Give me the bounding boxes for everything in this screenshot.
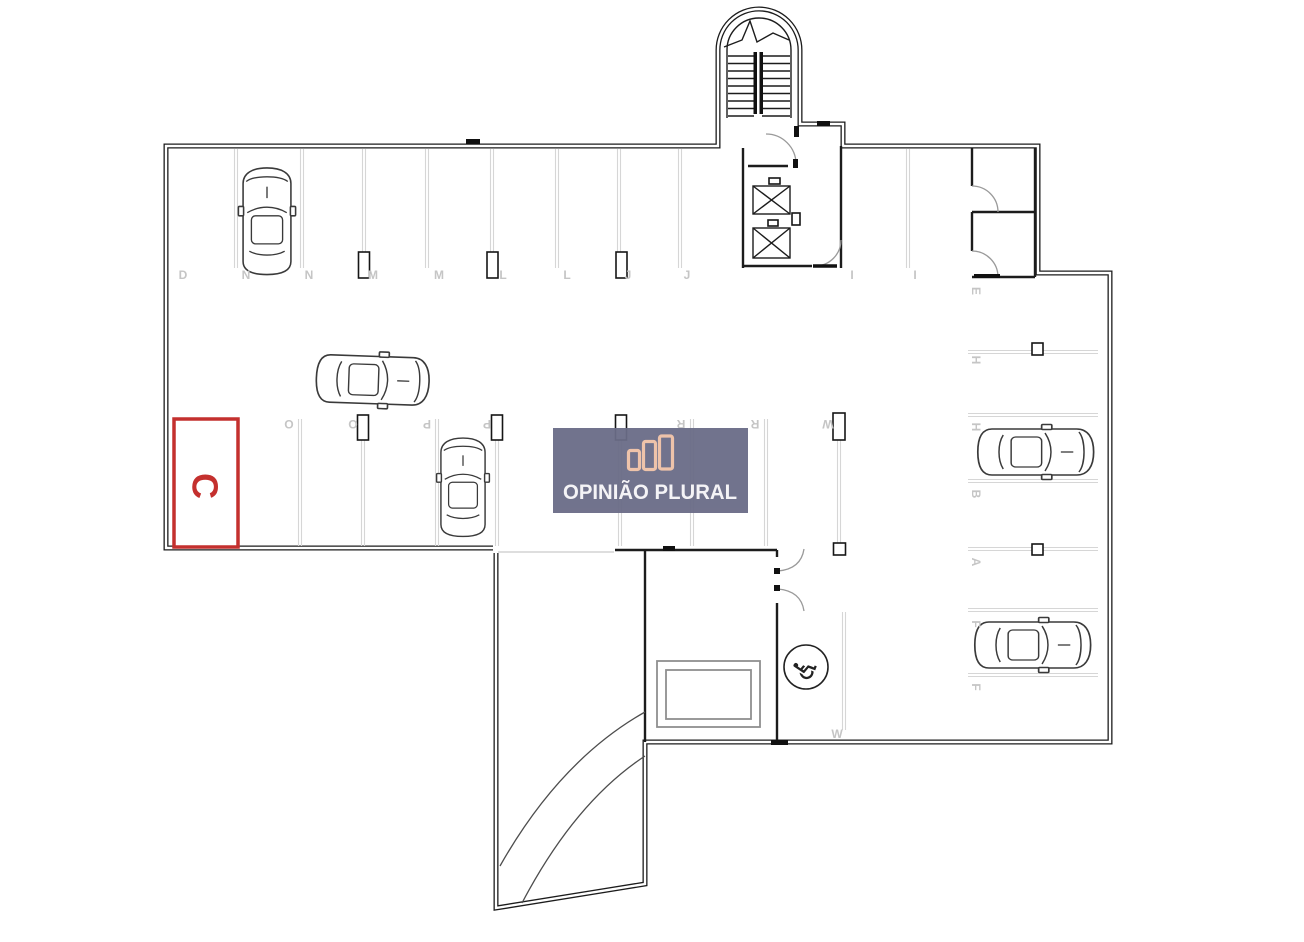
space-label: O	[348, 417, 357, 431]
parking-floor-plan-page: ♿ D N N M M L L J J I I O O P P R R W E …	[0, 0, 1304, 942]
space-label: W	[822, 417, 834, 431]
car	[978, 425, 1094, 480]
space-label: F	[969, 620, 983, 627]
highlighted-space[interactable]: C	[174, 419, 238, 547]
lobby-door-arc	[815, 240, 841, 266]
parking-floor-plan: ♿ D N N M M L L J J I I O O P P R R W E …	[0, 0, 1304, 942]
elevator-shaft-1	[753, 186, 790, 214]
double-door-leaf-bottom	[778, 589, 804, 611]
space-label: I	[913, 268, 916, 282]
car	[315, 350, 430, 411]
space-label: O	[284, 417, 293, 431]
space-label: M	[368, 268, 378, 282]
car	[437, 438, 490, 536]
stair-center-wall	[760, 52, 764, 114]
svg-text:♿: ♿	[784, 647, 828, 690]
room-b-door-arc	[972, 251, 998, 277]
elevator-call-panel	[768, 220, 778, 226]
door-hinge	[774, 585, 780, 591]
stair-center-wall	[754, 52, 758, 114]
space-label: F	[969, 683, 983, 690]
space-label: W	[831, 727, 843, 741]
space-label: H	[969, 356, 983, 365]
space-label: J	[684, 268, 691, 282]
elevator-shaft-2	[753, 228, 790, 258]
space-label: R	[750, 417, 759, 431]
car	[238, 168, 295, 275]
space-label: J	[625, 268, 632, 282]
door-hinge	[774, 568, 780, 574]
door-arcs	[766, 126, 1000, 611]
equipment-room	[657, 661, 760, 727]
space-label: I	[850, 268, 853, 282]
watermark-text: OPINIÃO PLURAL	[563, 481, 737, 504]
car	[975, 618, 1091, 673]
elevator-door-frame	[792, 213, 800, 225]
staircase	[724, 18, 791, 118]
space-label: B	[969, 490, 983, 499]
elevator-core	[753, 178, 800, 258]
elevator-call-panel	[769, 178, 780, 184]
room-a-door-arc	[972, 186, 998, 212]
wheelchair-icon: ♿	[784, 645, 828, 691]
double-door-leaf-top	[778, 549, 804, 571]
space-label: M	[434, 268, 444, 282]
space-label: L	[499, 268, 506, 282]
space-label: H	[969, 423, 983, 432]
watermark-overlay: OPINIÃO PLURAL	[553, 428, 748, 513]
space-label: P	[423, 417, 431, 431]
space-label: N	[242, 268, 251, 282]
space-label: P	[483, 417, 491, 431]
highlighted-space-letter: C	[185, 473, 226, 499]
parking-dividers-top	[235, 149, 910, 268]
stair-door-arc	[766, 134, 796, 164]
space-label: L	[563, 268, 570, 282]
space-label: E	[969, 287, 983, 295]
space-labels-top: D N N M M L L J J I I	[179, 268, 917, 282]
space-label: A	[969, 558, 983, 567]
ramp	[500, 712, 645, 903]
stair-treads	[728, 56, 790, 116]
space-label: N	[305, 268, 314, 282]
space-label: D	[179, 268, 188, 282]
